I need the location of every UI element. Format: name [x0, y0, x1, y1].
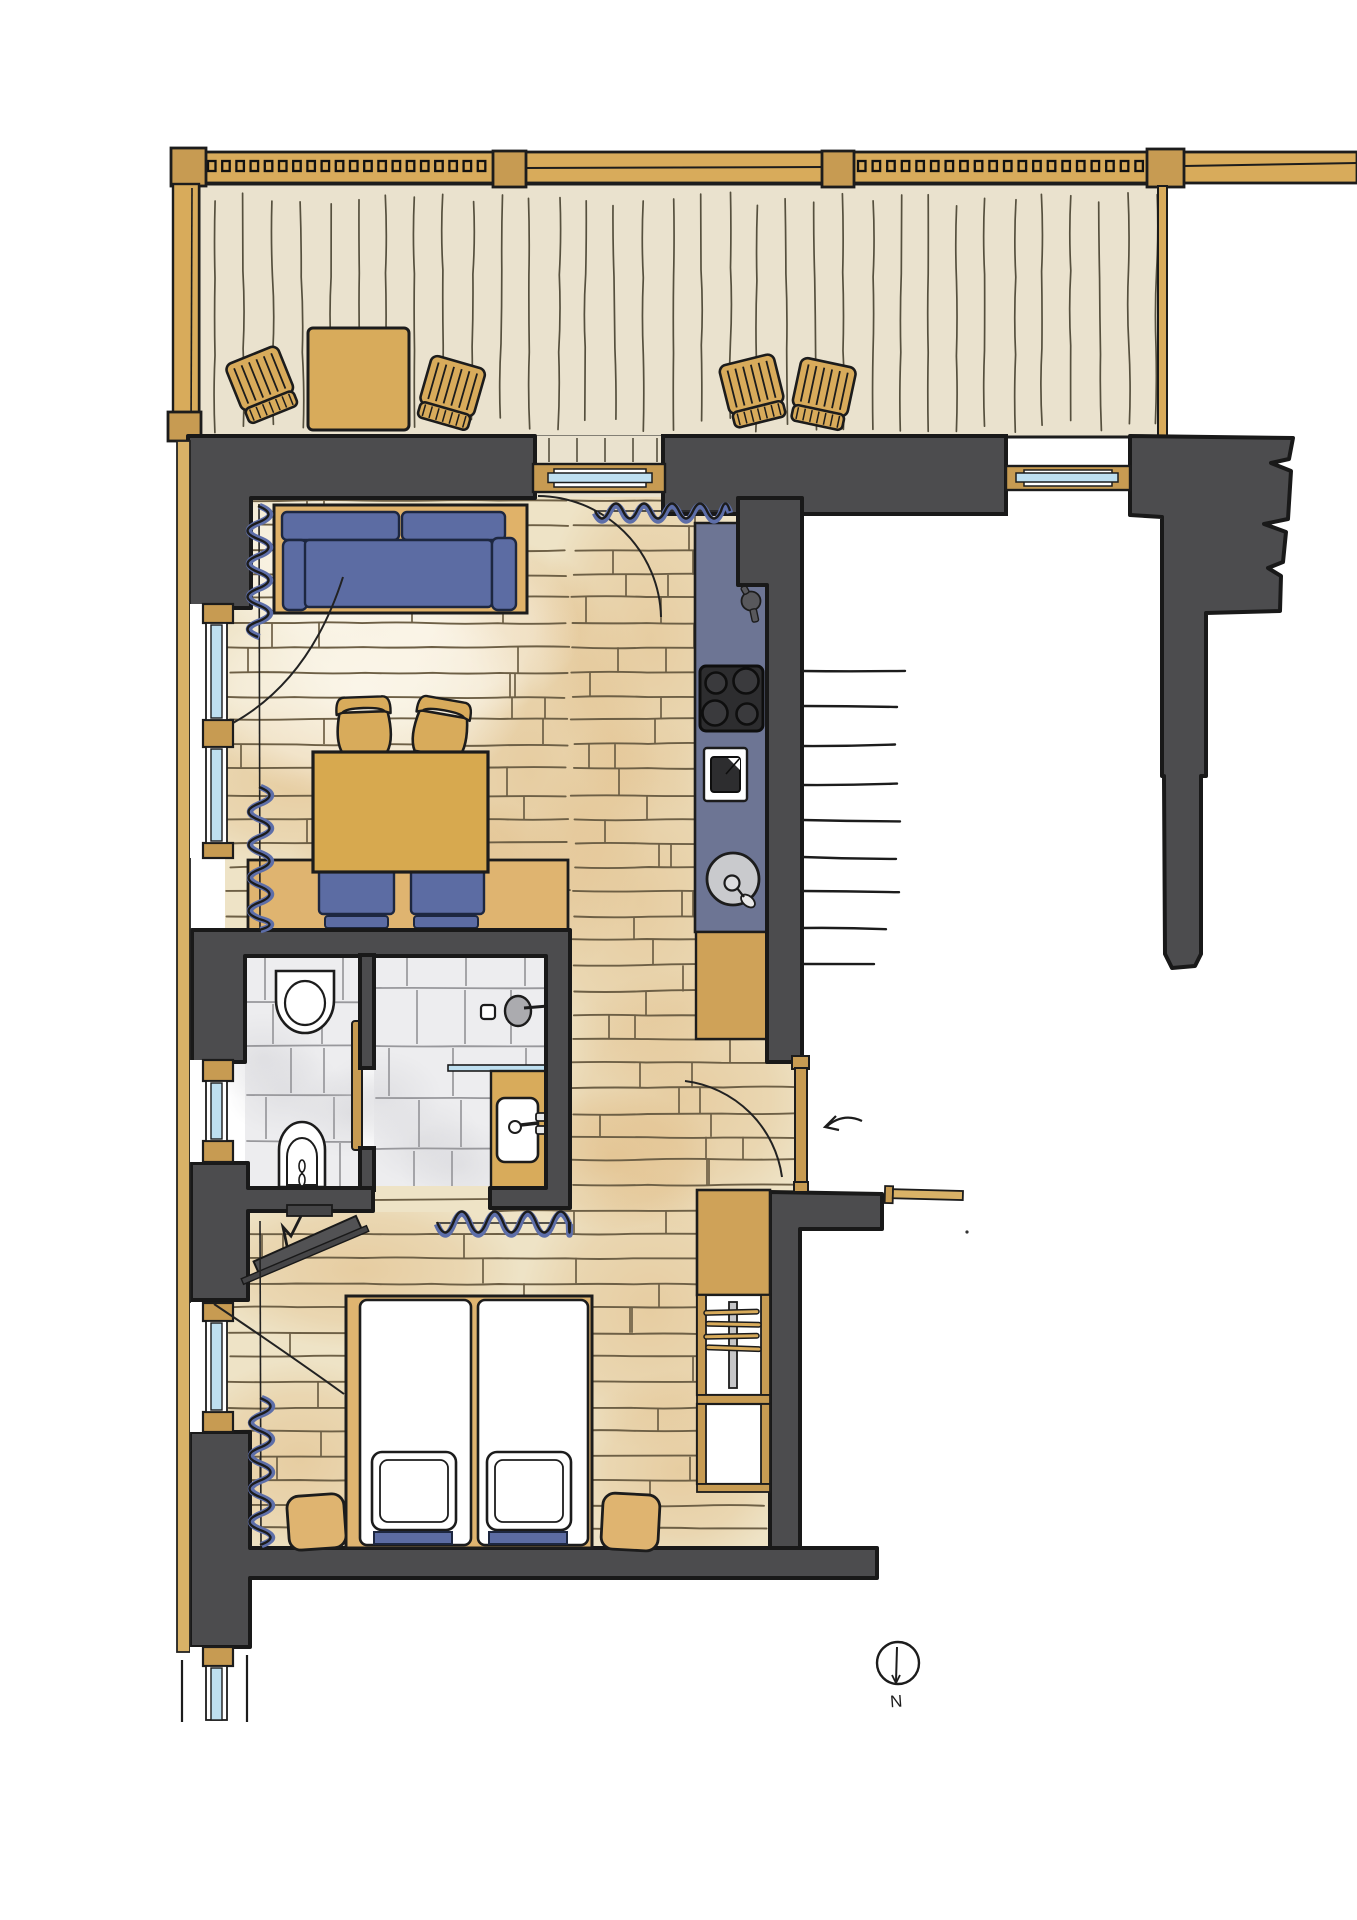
svg-text:N: N [889, 1692, 903, 1712]
